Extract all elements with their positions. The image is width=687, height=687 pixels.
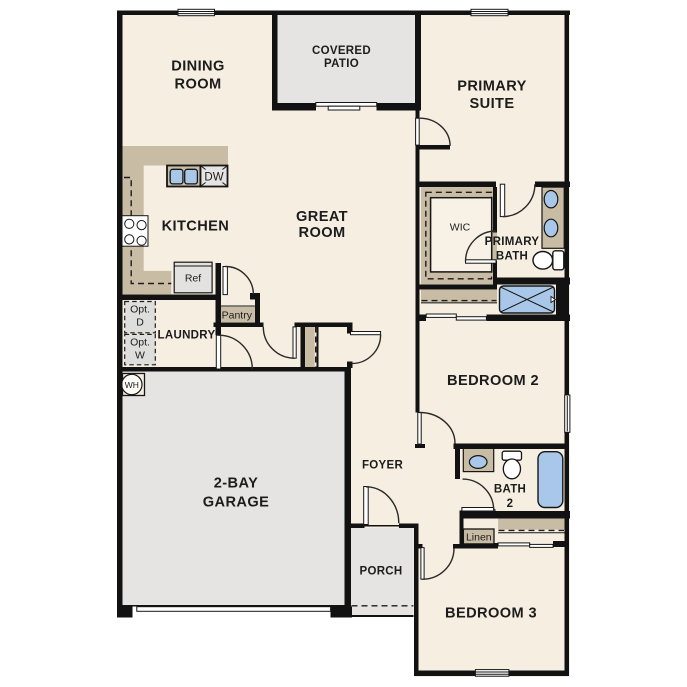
svg-text:Opt.: Opt. [130, 304, 150, 316]
svg-text:KITCHEN: KITCHEN [162, 219, 230, 235]
svg-text:PRIMARY: PRIMARY [485, 236, 540, 248]
svg-text:FOYER: FOYER [362, 459, 404, 471]
svg-text:SUITE: SUITE [470, 96, 515, 112]
svg-text:BEDROOM 3: BEDROOM 3 [445, 606, 537, 622]
svg-text:BEDROOM 2: BEDROOM 2 [447, 373, 539, 389]
svg-text:W: W [135, 350, 145, 362]
svg-text:GREAT: GREAT [296, 209, 348, 225]
svg-text:Opt.: Opt. [130, 337, 150, 349]
svg-text:WH: WH [125, 380, 139, 390]
svg-text:Linen: Linen [466, 532, 492, 544]
svg-text:2-BAY: 2-BAY [214, 475, 258, 491]
svg-text:2: 2 [507, 498, 514, 510]
svg-text:D: D [136, 317, 144, 329]
svg-text:PORCH: PORCH [359, 566, 402, 578]
svg-text:PRIMARY: PRIMARY [457, 79, 527, 95]
svg-text:Pantry: Pantry [222, 310, 253, 322]
svg-text:ROOM: ROOM [175, 76, 222, 92]
svg-text:BATH: BATH [496, 250, 528, 262]
svg-text:WIC: WIC [450, 222, 471, 234]
svg-text:PATIO: PATIO [324, 58, 359, 70]
svg-text:LAUNDRY: LAUNDRY [158, 330, 216, 342]
svg-text:Ref: Ref [185, 273, 201, 285]
svg-text:BATH: BATH [494, 483, 526, 495]
svg-text:COVERED: COVERED [312, 45, 371, 57]
svg-text:ROOM: ROOM [299, 225, 346, 241]
svg-text:DINING: DINING [171, 58, 224, 74]
svg-text:DW: DW [204, 172, 223, 184]
svg-text:GARAGE: GARAGE [203, 494, 269, 510]
